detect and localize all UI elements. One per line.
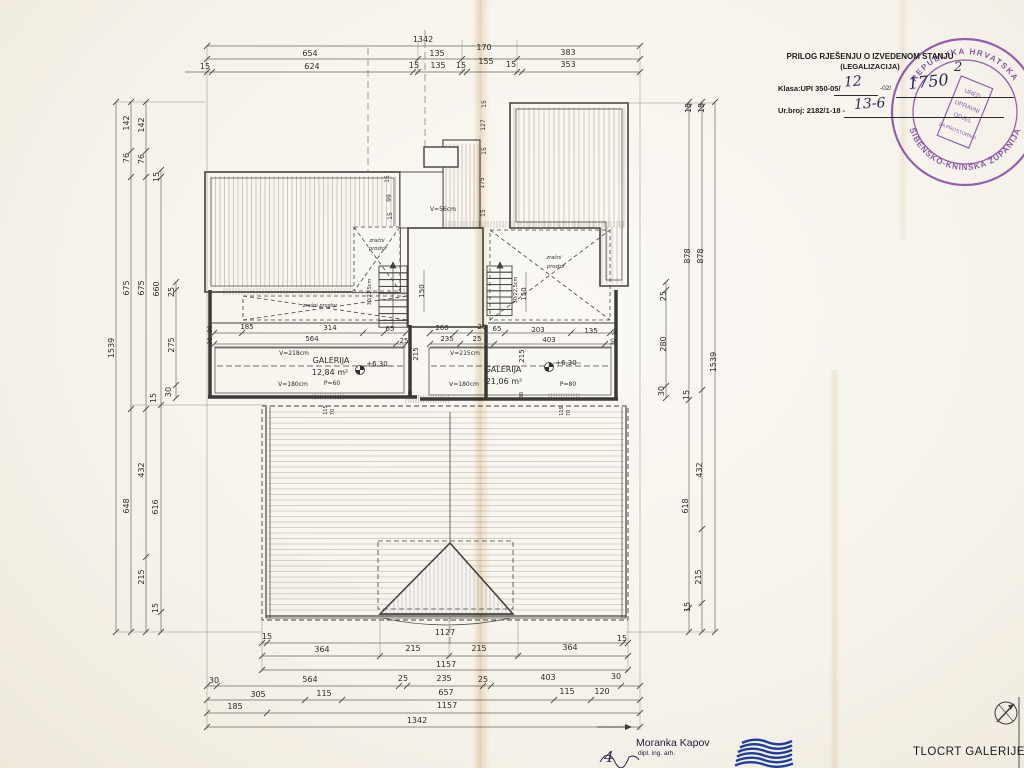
dim-label: 15 — [384, 175, 391, 183]
dim-label: 203 — [531, 326, 544, 334]
sheet-number: 4 — [604, 748, 614, 766]
dim-label: 403 — [542, 336, 555, 344]
dim-label: 1157 — [437, 701, 457, 710]
parapet-label: P=80 — [560, 381, 576, 388]
dimension-lines — [116, 30, 715, 730]
dim-label: 150 — [418, 284, 426, 297]
dim-label: 30 — [164, 387, 173, 397]
author-title: dipl. ing. arh. — [638, 750, 675, 757]
dim-label: 115 — [559, 687, 574, 696]
dim-label: 15 — [682, 390, 691, 400]
gable-triangle — [380, 543, 513, 614]
dim-label: 275 — [167, 337, 176, 352]
dim-label: 127 — [480, 119, 487, 131]
dim-label: 15 — [684, 103, 693, 113]
dim-label: 150 — [520, 287, 528, 300]
author-name: Moranka Kapov — [636, 737, 710, 749]
dim-label: 185 — [227, 702, 242, 711]
level-markers — [356, 363, 582, 375]
dim-label: 15 — [481, 147, 488, 155]
dim-label: 1157 — [436, 660, 456, 669]
dim-label: 675 — [122, 280, 131, 295]
dim-label: 654 — [302, 49, 317, 58]
room-area-label: 12,84 m² — [312, 368, 348, 377]
dim-label: 1539 — [709, 352, 718, 372]
klasa-label: Klasa:UPI 350-05/ — [778, 84, 841, 93]
dim-label: 70 — [330, 409, 336, 415]
dim-label: 15 — [506, 60, 516, 69]
level-label: +6,30 — [555, 359, 576, 367]
dim-label: 215 — [694, 569, 703, 584]
dim-label: 155 — [478, 57, 493, 66]
room-name-label: GALERIJA — [313, 356, 350, 365]
dim-label: 120 — [594, 687, 609, 696]
dim-label: 76 — [137, 154, 146, 164]
dim-label: 135 — [430, 61, 445, 70]
dim-label: 170 — [476, 43, 491, 52]
dim-label: 185 — [240, 323, 253, 331]
dim-label: 353 — [560, 60, 575, 69]
legalization-title: PRILOG RJEŠENJU O IZVEDENOM STANJU — [778, 52, 962, 61]
dim-label: 564 — [302, 675, 317, 684]
dim-label: 1342 — [413, 35, 433, 44]
dim-label: 65 — [386, 325, 395, 333]
room-height-label: V=218cm — [279, 350, 309, 357]
dim-label: 30/22,5cm — [367, 278, 373, 305]
scanned-drawing-page: 1342654135170383156241513515155153531539… — [0, 0, 1024, 768]
dim-label: 1127 — [435, 628, 455, 637]
dim-label: 618 — [681, 498, 690, 513]
dim-label: 142 — [137, 117, 146, 132]
dim-label: 432 — [137, 462, 146, 477]
leader-arrow — [625, 724, 632, 730]
dim-label: 564 — [305, 335, 319, 343]
eave-arc — [382, 618, 511, 625]
dim-label: 364 — [562, 643, 577, 652]
dimension-labels: 1342654135170383156241513515155153531539… — [107, 35, 718, 725]
dim-label: 30 — [519, 392, 525, 398]
north-symbol — [995, 702, 1017, 724]
dim-label: 115 — [559, 406, 565, 416]
dim-label: 15 — [200, 62, 210, 71]
dim-label: 30 — [611, 672, 621, 681]
room-height-label: V=180cm — [449, 381, 479, 388]
dim-label: 215 — [471, 644, 486, 653]
dim-label: 648 — [122, 498, 131, 513]
dim-label: 675 — [137, 280, 146, 295]
dim-label: 624 — [304, 62, 319, 71]
room-height-label: V=180cm — [278, 381, 308, 388]
dim-label: 115 — [323, 405, 329, 415]
dim-label: 135 — [584, 327, 597, 335]
dim-label: 15 — [387, 212, 394, 220]
dim-label: 1539 — [107, 338, 116, 358]
dim-label: 15 — [481, 100, 488, 108]
dim-label: 15 — [617, 634, 627, 643]
dim-label: 280 — [659, 336, 668, 351]
dim-label: 135 — [429, 49, 444, 58]
dim-label: 15 — [456, 61, 466, 70]
dim-label: 65 — [493, 325, 502, 333]
air-space-label: prostor — [546, 264, 566, 270]
dim-label: 15 — [152, 172, 161, 182]
dim-label: 215 — [518, 349, 526, 362]
air-space-label: zračni prostor — [302, 302, 339, 309]
dim-label: 30 — [408, 391, 414, 397]
dim-label: 25 — [400, 337, 409, 345]
dim-label: 15 — [683, 602, 692, 612]
room-height-label: V=215cm — [450, 350, 480, 357]
dim-label: 383 — [560, 48, 575, 57]
air-space-label: zračni — [368, 237, 385, 244]
dim-label: 15 — [697, 103, 706, 113]
dim-label: 25 — [167, 287, 176, 297]
dim-label: 660 — [152, 281, 161, 296]
dim-label: 175 — [479, 177, 486, 189]
dim-label: 30 — [209, 676, 219, 685]
dim-label: 15 — [151, 603, 160, 613]
legalization-note: PRILOG RJEŠENJU O IZVEDENOM STANJU (LEGA… — [778, 52, 1024, 192]
klasa-handwritten-2: 1750 — [907, 70, 949, 93]
dim-label: 70 — [566, 410, 572, 416]
dim-label: 235 — [440, 335, 453, 343]
dim-label: 30/22,5cm — [513, 276, 519, 303]
klasa-handwritten-1: 12 — [843, 73, 862, 90]
handwritten-page-number: 2 — [954, 60, 962, 75]
dim-label: 15 — [480, 209, 487, 217]
dim-label: 305 — [250, 690, 265, 699]
room-area-label: 21,06 m² — [486, 377, 522, 386]
dim-label: 76 — [122, 153, 131, 163]
dim-label: 15 — [409, 61, 419, 70]
dim-label: 25 — [473, 335, 482, 343]
dim-label: 432 — [695, 462, 704, 477]
dim-label: 30 — [207, 337, 214, 345]
air-space-label: prostor — [368, 246, 388, 252]
air-space-label: zračni — [545, 254, 562, 261]
chimney — [424, 147, 458, 167]
dim-label: 314 — [323, 324, 337, 332]
dim-label: 30 — [207, 325, 214, 333]
dim-label: 403 — [540, 673, 555, 682]
klasa-suffix: -02/ — [880, 85, 891, 92]
dim-label: 30 — [610, 338, 617, 346]
dim-label: 25 — [478, 675, 488, 684]
stairwell-void — [408, 228, 483, 327]
dim-label: 364 — [314, 645, 329, 654]
dim-label: 25 — [398, 674, 408, 683]
dim-label: 115 — [316, 689, 331, 698]
dim-label: 215 — [405, 644, 420, 653]
dim-label: 878 — [683, 248, 692, 263]
dim-label: 616 — [151, 499, 160, 514]
dim-label: 235 — [436, 674, 451, 683]
level-label: +6,30 — [366, 360, 387, 368]
dim-label: 25 — [478, 323, 487, 331]
dim-label: 15 — [262, 632, 272, 641]
dim-label: 878 — [696, 248, 705, 263]
urbroj-label: Ur.broj: 2182/1-18 - — [778, 106, 845, 115]
room-name-label: GALERIJA — [485, 365, 522, 374]
dim-label: 30 — [612, 328, 619, 336]
urbroj-handwritten: 13-6 — [854, 95, 886, 113]
legalization-subtitle: (LEGALIZACIJA) — [778, 62, 962, 71]
company-logo — [735, 740, 793, 767]
dim-label: 30 — [657, 386, 666, 396]
dim-label: 260 — [435, 324, 448, 332]
void-height-label: V=56cm — [430, 206, 456, 213]
dim-label: 657 — [438, 688, 453, 697]
dim-label: 215 — [412, 347, 420, 360]
drawing-title: TLOCRT GALERIJE — [913, 746, 1024, 758]
parapet-label: P=60 — [324, 380, 340, 387]
dim-label: 142 — [122, 115, 131, 130]
dim-label: 25 — [659, 291, 668, 301]
dim-label: 99 — [386, 194, 393, 202]
dim-label: 215 — [137, 569, 146, 584]
dim-label: 1342 — [407, 716, 427, 725]
dim-label: 15 — [149, 393, 158, 403]
